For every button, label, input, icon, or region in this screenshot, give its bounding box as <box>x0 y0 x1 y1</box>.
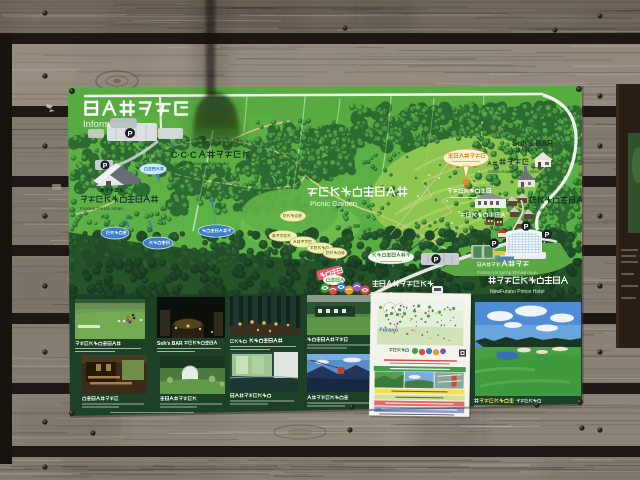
svg-text:Ningle Terrace: Ningle Terrace <box>533 207 562 212</box>
svg-text:C·C·C Furano Shizenjuku: C·C·C Furano Shizenjuku <box>174 161 229 167</box>
svg-text:P: P <box>524 222 529 231</box>
svg-text:P: P <box>103 163 108 170</box>
svg-text:P: P <box>434 255 439 264</box>
svg-text:Soh's BAR: Soh's BAR <box>157 341 183 347</box>
svg-text:P: P <box>545 230 550 239</box>
svg-text:P: P <box>127 129 132 138</box>
svg-text:Furano Prince Hotel: Furano Prince Hotel <box>80 206 123 212</box>
svg-text:Picnic Garden: Picnic Garden <box>310 199 357 208</box>
svg-text:Soh's BAR: Soh's BAR <box>512 139 553 148</box>
svg-text:Furano Hot Spring Shiosai no y: Furano Hot Spring Shiosai no yu <box>477 270 538 275</box>
svg-text:P: P <box>492 239 497 248</box>
svg-text:Furano: Furano <box>379 327 398 333</box>
svg-text:NewFurano Prince Hotel: NewFurano Prince Hotel <box>490 289 544 295</box>
svg-text:Coffee House Mori no tokei: Coffee House Mori no tokei <box>488 169 539 174</box>
